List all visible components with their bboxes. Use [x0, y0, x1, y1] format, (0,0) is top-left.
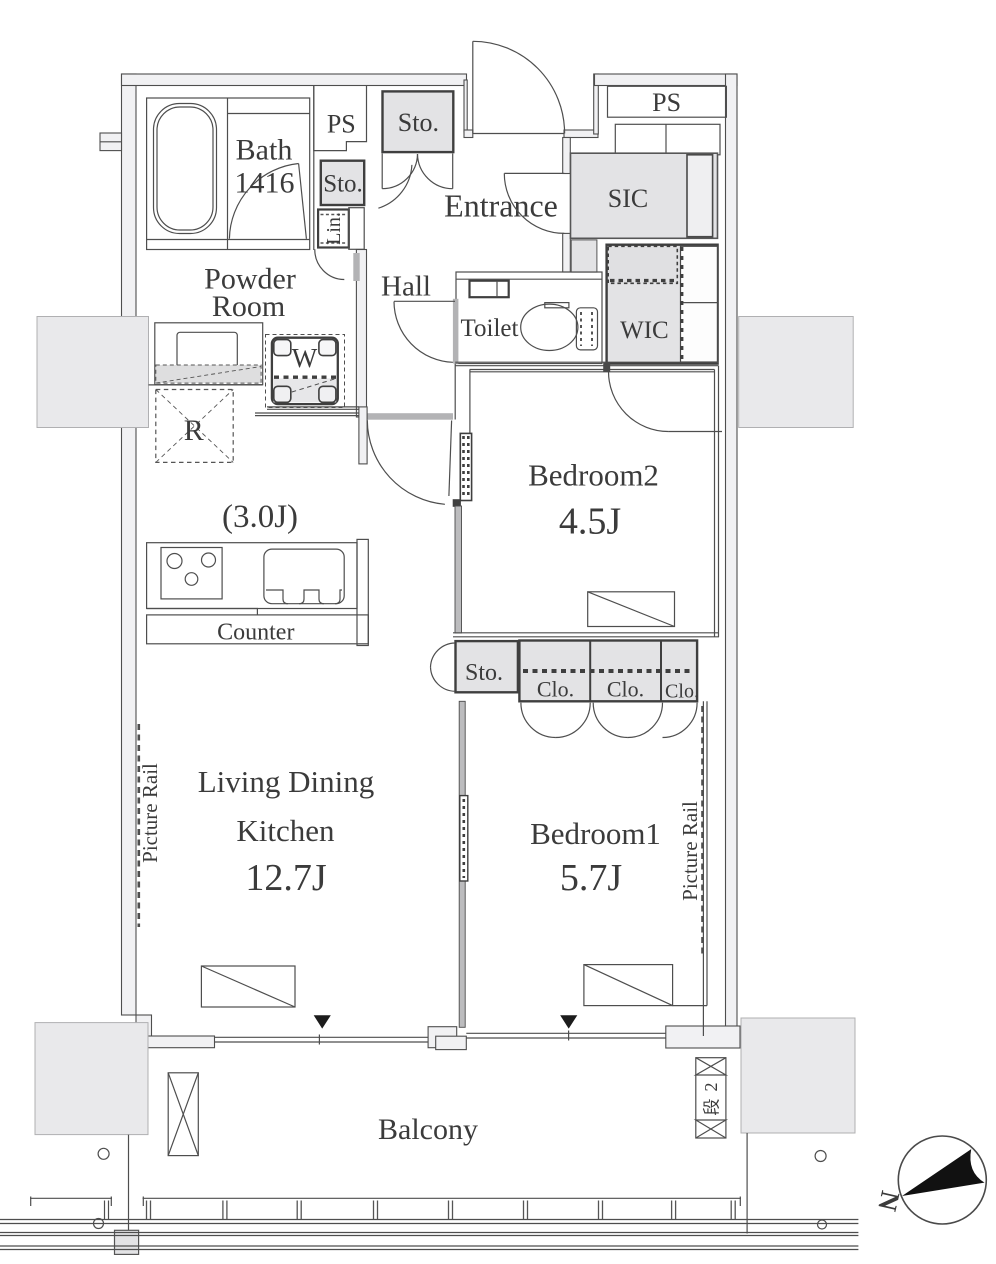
svg-text:Room: Room — [212, 290, 285, 323]
svg-text:1416: 1416 — [235, 167, 295, 200]
svg-text:Bedroom2: Bedroom2 — [528, 458, 659, 493]
svg-text:Sto.: Sto. — [323, 171, 363, 198]
svg-text:SIC: SIC — [608, 184, 648, 213]
svg-text:R: R — [184, 414, 204, 447]
svg-text:Picture Rail: Picture Rail — [678, 801, 702, 901]
svg-text:Hall: Hall — [381, 271, 431, 303]
svg-text:Counter: Counter — [217, 620, 294, 646]
svg-text:Sto.: Sto. — [398, 108, 439, 137]
svg-text:Entrance: Entrance — [444, 188, 558, 224]
svg-text:WIC: WIC — [620, 317, 669, 344]
svg-text:PS: PS — [652, 88, 681, 117]
svg-text:Picture Rail: Picture Rail — [138, 763, 162, 863]
svg-text:Balcony: Balcony — [378, 1113, 478, 1146]
svg-text:段: 段 — [703, 1099, 722, 1116]
svg-text:Lin.: Lin. — [323, 212, 345, 245]
svg-text:5.7J: 5.7J — [560, 857, 622, 899]
svg-text:(3.0J): (3.0J) — [222, 499, 298, 535]
svg-text:Living Dining: Living Dining — [198, 764, 375, 799]
svg-text:12.7J: 12.7J — [245, 857, 326, 899]
svg-text:2: 2 — [701, 1083, 721, 1092]
svg-text:PS: PS — [327, 110, 356, 139]
svg-text:Sto.: Sto. — [465, 660, 503, 686]
svg-text:Clo.: Clo. — [665, 681, 699, 703]
svg-text:W: W — [292, 343, 318, 373]
svg-text:Bath: Bath — [236, 134, 293, 167]
svg-text:4.5J: 4.5J — [559, 501, 621, 543]
svg-text:Kitchen: Kitchen — [236, 813, 335, 848]
svg-text:Toilet: Toilet — [461, 315, 519, 342]
svg-text:Clo.: Clo. — [607, 677, 644, 702]
svg-text:Bedroom1: Bedroom1 — [530, 816, 661, 851]
svg-text:Clo.: Clo. — [537, 677, 574, 702]
